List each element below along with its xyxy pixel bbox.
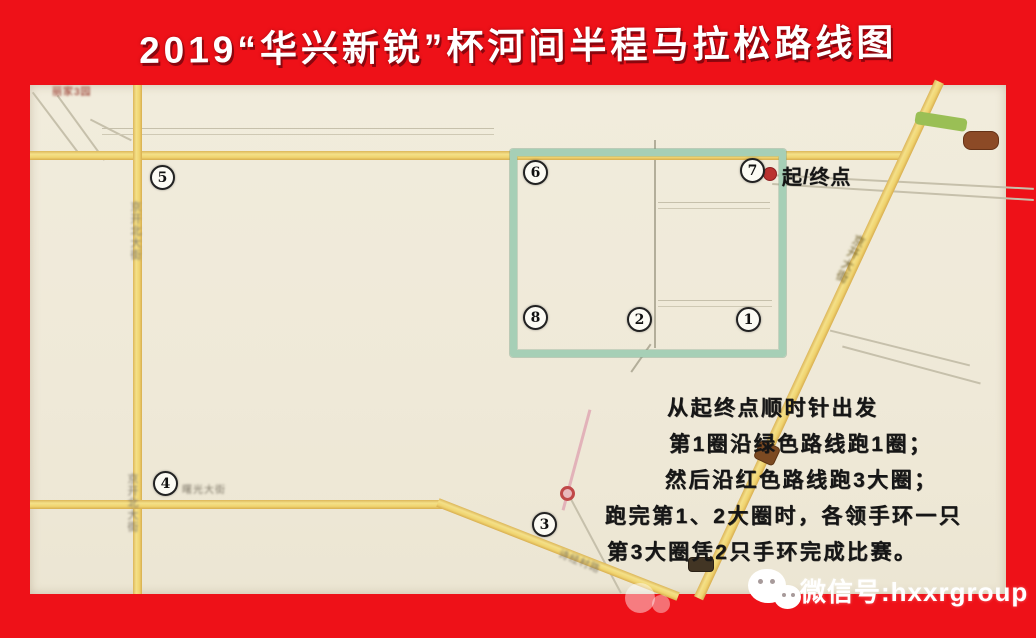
- poi-ring-marker: [560, 486, 575, 501]
- instruction-line: 然后沿红色路线跑3大圈；: [665, 463, 1005, 499]
- wechat-icon: [748, 569, 804, 619]
- instruction-line: 跑完第1、2大圈时，各领手环一只: [605, 499, 1005, 535]
- wechat-icon-faint: [652, 595, 670, 613]
- checkpoint-7: 7: [740, 158, 765, 183]
- checkpoint-6: 6: [523, 160, 548, 185]
- checkpoint-1: 1: [736, 307, 761, 332]
- instruction-line: 第1圈沿绿色路线跑1圈；: [669, 427, 1005, 463]
- road-label-highway: 京开大街: [832, 232, 869, 286]
- checkpoint-5: 5: [150, 165, 175, 190]
- minor-road: [32, 92, 84, 160]
- checkpoint-3: 3: [532, 512, 557, 537]
- south-road: [30, 500, 442, 509]
- checkpoint-2: 2: [627, 307, 652, 332]
- checkpoint-4: 4: [153, 471, 178, 496]
- start-finish-label: 起/终点: [782, 161, 852, 190]
- poster-title: 2019“华兴新锐”杯河间半程马拉松路线图: [139, 12, 898, 74]
- road-shield-marker: [963, 131, 999, 150]
- checkpoint-8: 8: [523, 305, 548, 330]
- road-label-west-lower: 京开北大街: [124, 473, 140, 533]
- minor-road-double: [102, 128, 494, 135]
- road-label-west-upper: 京开北大街: [127, 201, 143, 261]
- wechat-id-text: 微信号:hxxrgroup: [800, 572, 1028, 609]
- route-map: 丽家3园 京开北大街 京开北大街 曙光大街 诗经村路 京开大街 5 6 7 8 …: [30, 85, 1006, 594]
- instruction-line: 从起终点顺时针出发: [667, 391, 1005, 427]
- road-label-corner: 丽家3园: [52, 83, 92, 98]
- wechat-icon-faint: [625, 583, 655, 613]
- road-label-south: 曙光大街: [182, 481, 226, 496]
- race-instructions: 从起终点顺时针出发 第1圈沿绿色路线跑1圈； 然后沿红色路线跑3大圈； 跑完第1…: [605, 391, 1005, 571]
- title-banner: 2019“华兴新锐”杯河间半程马拉松路线图: [0, 0, 1036, 85]
- start-finish-marker: [763, 167, 777, 181]
- marathon-route-poster: 2019“华兴新锐”杯河间半程马拉松路线图: [0, 0, 1036, 638]
- watermark: 微信号:hxxrgroup: [618, 563, 1036, 625]
